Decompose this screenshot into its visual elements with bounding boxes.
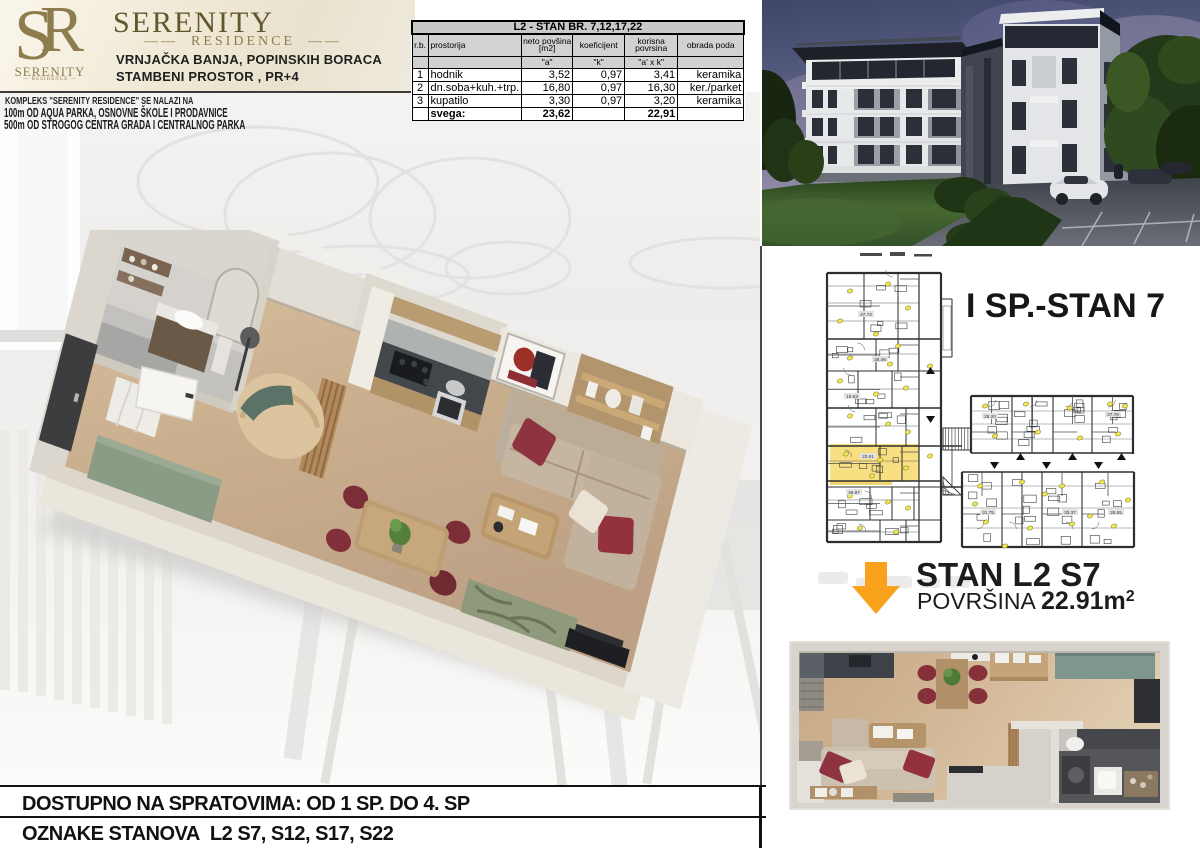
svg-text:33.37: 33.37 [1064, 510, 1076, 515]
svg-text:28.46: 28.46 [874, 357, 886, 362]
svg-text:I SP.-STAN 7: I SP.-STAN 7 [966, 287, 1165, 325]
svg-text:23.91: 23.91 [862, 454, 874, 459]
svg-text:27.78: 27.78 [1107, 412, 1119, 417]
svg-text:26.55: 26.55 [1110, 510, 1122, 515]
svg-text:28.20: 28.20 [984, 414, 996, 419]
svg-text:19.63: 19.63 [846, 394, 858, 399]
svg-text:47.73: 47.73 [860, 312, 872, 317]
svg-text:46.97: 46.97 [848, 490, 860, 495]
svg-text:31.75: 31.75 [982, 510, 994, 515]
